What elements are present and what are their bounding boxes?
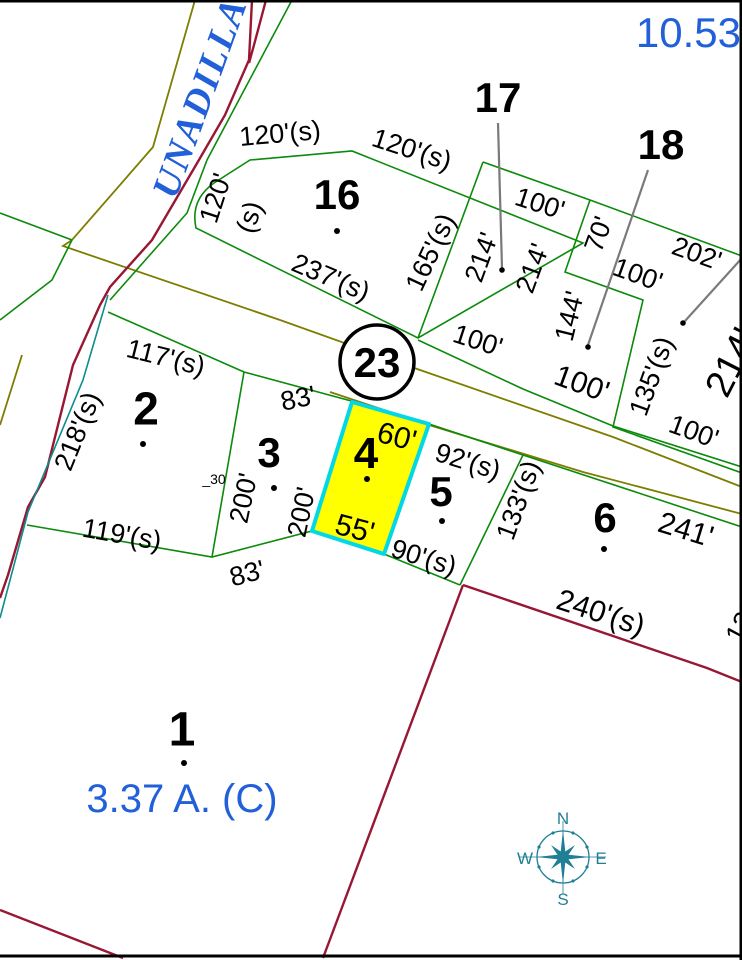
dimension-label: 165'(s) <box>400 209 462 296</box>
border-bottom <box>0 955 742 958</box>
compass-east-label: E <box>595 849 606 868</box>
dimension-label: 237'(s) <box>287 248 374 308</box>
parcel-number-17: 17 <box>475 74 522 121</box>
leader-lines-layer <box>498 123 742 350</box>
compass-star-icon <box>536 830 590 884</box>
border-top <box>0 0 742 3</box>
dimension-label: 100' <box>550 359 614 409</box>
west-junction-a <box>0 213 72 240</box>
dimension-label: (s) <box>230 198 268 237</box>
dimension-label: 70' <box>578 212 618 255</box>
compass-south-label: S <box>557 890 568 909</box>
lot1-area-label: 3.37 A. (C) <box>86 777 277 821</box>
compass-west-label: W <box>517 849 533 868</box>
parcel-number-5: 5 <box>429 468 452 515</box>
dimension-label: 119'(s) <box>80 513 164 556</box>
parcel-dot-1 <box>181 760 187 766</box>
parcel-number-3: 3 <box>257 429 280 476</box>
dimension-label: 120'(s) <box>368 123 455 177</box>
block-area-label: 10.53 <box>636 9 741 56</box>
dimension-label: 240'(s) <box>552 583 649 642</box>
dimension-label: 202' <box>668 231 725 276</box>
dimension-label: 120'(s) <box>238 115 322 152</box>
parcel-number-16: 16 <box>314 171 361 218</box>
parcel-dot-6 <box>601 546 607 552</box>
leader-dot-2 <box>680 320 686 326</box>
dimension-label: 83' <box>226 554 268 592</box>
dimension-label: 90'(s) <box>388 533 461 581</box>
dimension-label: 241' <box>654 506 717 554</box>
west-junction-b <box>0 240 72 320</box>
parcel-dot-3 <box>271 485 277 491</box>
lot1-west-boundary <box>0 910 123 958</box>
parcel-map: 120'(s)120'(s)120'(s)237'(s)165'(s)100'2… <box>0 0 742 960</box>
parcel-number-6: 6 <box>593 494 616 541</box>
street-name-label: UNADILLA <box>145 0 256 203</box>
dimension-label: 214' <box>459 228 504 285</box>
dimension-label: 135' <box>719 589 742 647</box>
parcel-number-1: 1 <box>169 703 196 756</box>
parcel-dot-4 <box>364 476 370 482</box>
dimension-label: 200' <box>224 470 264 525</box>
compass-north-label: N <box>557 809 569 828</box>
dimension-label: 117'(s) <box>124 333 209 381</box>
compass-rose: N E S W <box>517 809 607 909</box>
parcel-number-2: 2 <box>133 383 159 435</box>
parcel-dot-5 <box>439 518 445 524</box>
small-note-label: _30 <box>201 471 226 487</box>
dimension-label: 100' <box>449 318 506 362</box>
parcel-dot-2 <box>140 441 146 447</box>
road-number-badge: 23 <box>340 325 414 399</box>
parcel-number-4: 4 <box>354 429 379 478</box>
road-badge-label: 23 <box>354 339 401 386</box>
lot1-east-boundary <box>323 585 463 958</box>
dimension-label: 144' <box>549 288 590 344</box>
parcel-number-18: 18 <box>638 121 685 168</box>
parcel-dot-16 <box>334 228 340 234</box>
dimension-label: 100' <box>665 409 722 454</box>
leader-dot-0 <box>499 267 505 273</box>
leader-dot-1 <box>585 344 591 350</box>
dimension-label: 100' <box>511 181 568 225</box>
road-edge-west <box>0 355 22 425</box>
dimension-label: 214' <box>510 239 555 296</box>
dimension-label: 83' <box>278 380 319 417</box>
dimension-label: 214' <box>697 322 742 404</box>
lot2-lot3-divider <box>212 372 244 557</box>
